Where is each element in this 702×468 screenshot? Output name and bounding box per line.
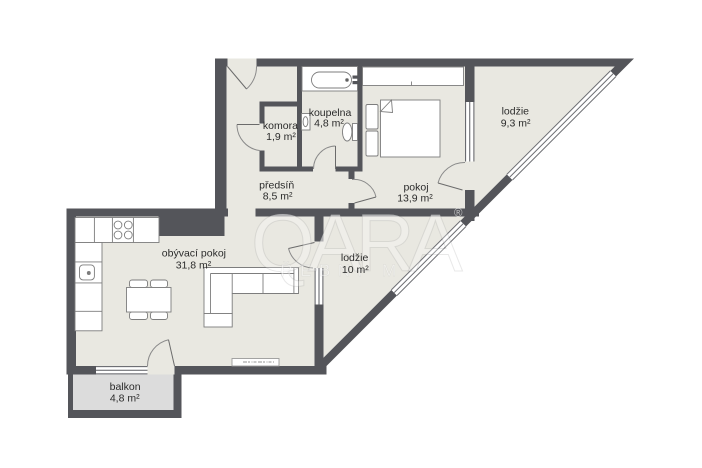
- svg-text:®: ®: [454, 208, 463, 220]
- svg-text:9,3 m²: 9,3 m²: [501, 118, 531, 130]
- svg-text:1,9 m²: 1,9 m²: [266, 131, 296, 143]
- svg-text:obývací pokoj: obývací pokoj: [162, 248, 226, 260]
- svg-text:13,9 m²: 13,9 m²: [397, 193, 433, 205]
- svg-text:31,8 m²: 31,8 m²: [176, 260, 212, 272]
- svg-text:balkon: balkon: [110, 381, 141, 393]
- svg-text:lodžie: lodžie: [341, 252, 369, 264]
- svg-text:8,5 m²: 8,5 m²: [263, 190, 293, 202]
- svg-text:4,8 m²: 4,8 m²: [110, 393, 140, 405]
- svg-text:10 m²: 10 m²: [342, 264, 369, 276]
- svg-text:lodžie: lodžie: [502, 106, 530, 118]
- svg-text:4,8 m²: 4,8 m²: [314, 118, 344, 130]
